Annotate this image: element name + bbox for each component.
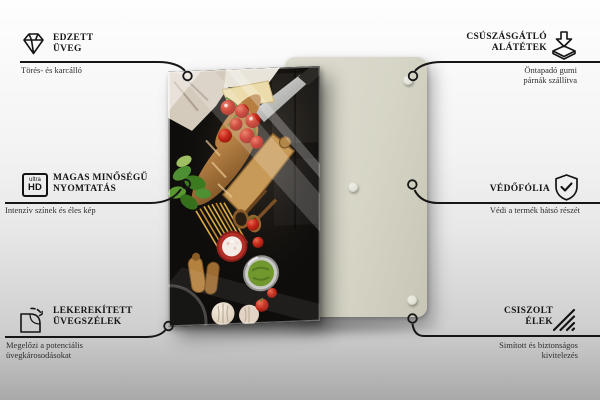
callout-title-rounded-edges: LEKEREKÍTETT ÜVEGSZÉLEK — [53, 306, 133, 327]
connector-dot — [183, 72, 192, 81]
connector-dot — [164, 322, 173, 331]
callout-subtitle-anti-slip-pads: Öntapadó gumi párnák szállítva — [523, 65, 577, 85]
connector-dot — [408, 314, 417, 323]
polished-edges-icon — [552, 306, 576, 337]
callout-title-tempered-glass: EDZETT ÜVEG — [53, 33, 93, 54]
callout-title-protective-film: VÉDŐFÓLIA — [490, 184, 550, 195]
ultra-hd-icon: ultra HD — [22, 173, 48, 197]
ultra-hd-icon-text-bottom: HD — [28, 183, 42, 193]
callout-subtitle-protective-film: Védi a termék hátsó részét — [490, 205, 580, 215]
callout-title-polished-edges: CSISZOLT ÉLEK — [504, 306, 553, 327]
product-infographic: EDZETT ÜVEG Törés- és karcálló CSÚSZÁSGÁ… — [0, 0, 600, 400]
callout-subtitle-tempered-glass: Törés- és karcálló — [21, 65, 82, 75]
diamond-icon — [20, 32, 47, 61]
callout-title-high-quality-print: MAGAS MINŐSÉGŰ NYOMTATÁS — [53, 173, 148, 194]
callout-title-anti-slip-pads: CSÚSZÁSGÁTLÓ ALÁTÉTEK — [466, 32, 547, 53]
connector-dot — [409, 72, 418, 81]
callout-subtitle-high-quality-print: Intenzív színek és éles kép — [5, 205, 96, 215]
anti-slip-pads-icon — [550, 30, 578, 65]
callout-subtitle-polished-edges: Simított és biztonságos kivitelezés — [499, 340, 578, 360]
callout-subtitle-rounded-edges: Megelőzi a potenciális üvegkárosodásokat — [6, 340, 83, 360]
connector-dot — [408, 180, 417, 189]
connector-dot — [182, 180, 191, 189]
shield-check-icon — [553, 173, 580, 206]
rounded-corner-icon — [18, 306, 44, 339]
